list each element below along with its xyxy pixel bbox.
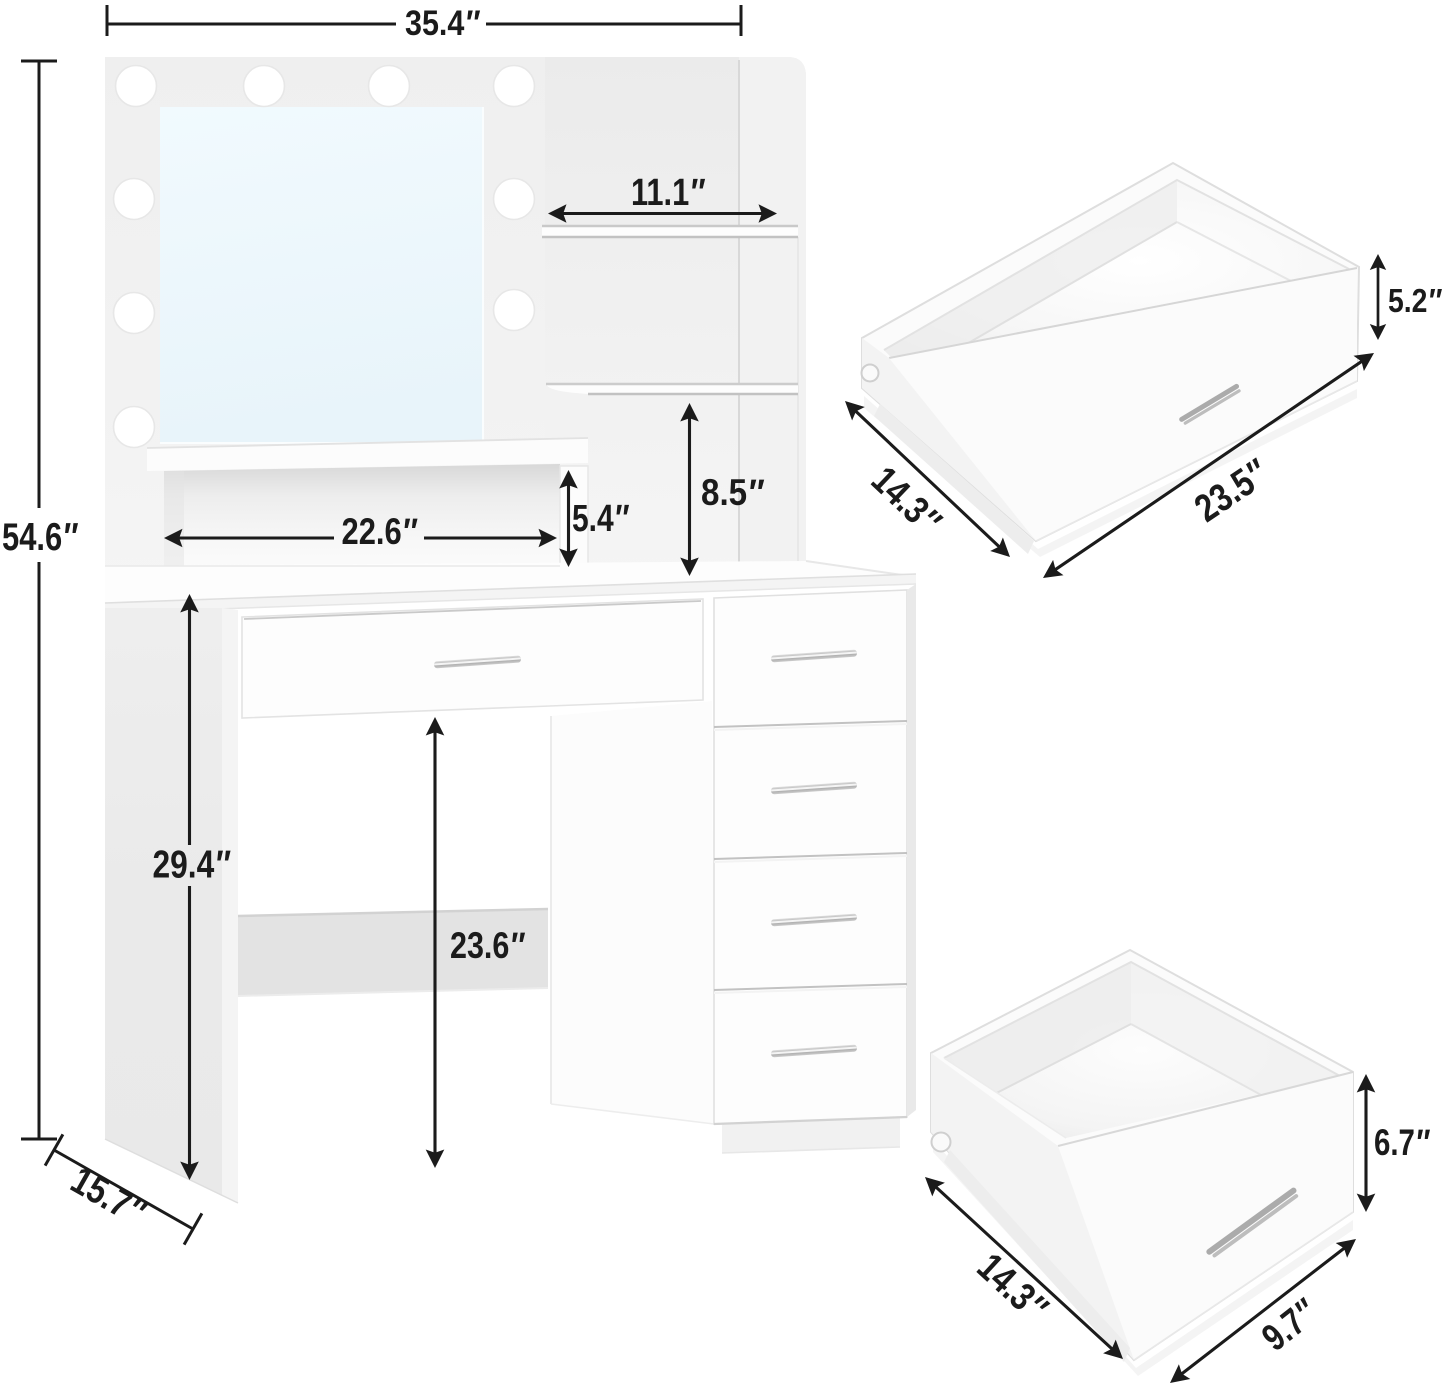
svg-text:35.4″: 35.4″ <box>405 3 481 43</box>
svg-text:29.4″: 29.4″ <box>153 844 232 887</box>
svg-text:5.4″: 5.4″ <box>572 498 629 540</box>
svg-text:15.7″: 15.7″ <box>64 1159 154 1235</box>
svg-text:22.6″: 22.6″ <box>342 511 419 552</box>
svg-text:23.6″: 23.6″ <box>450 924 526 966</box>
svg-text:14.3″: 14.3″ <box>863 459 949 544</box>
svg-text:54.6″: 54.6″ <box>2 516 79 559</box>
svg-text:5.2″: 5.2″ <box>1388 282 1442 319</box>
svg-text:6.7″: 6.7″ <box>1374 1122 1431 1163</box>
svg-text:11.1″: 11.1″ <box>631 172 705 214</box>
svg-text:9.7″: 9.7″ <box>1255 1291 1326 1359</box>
svg-text:8.5″: 8.5″ <box>701 472 765 513</box>
svg-text:23.5″: 23.5″ <box>1187 451 1276 531</box>
